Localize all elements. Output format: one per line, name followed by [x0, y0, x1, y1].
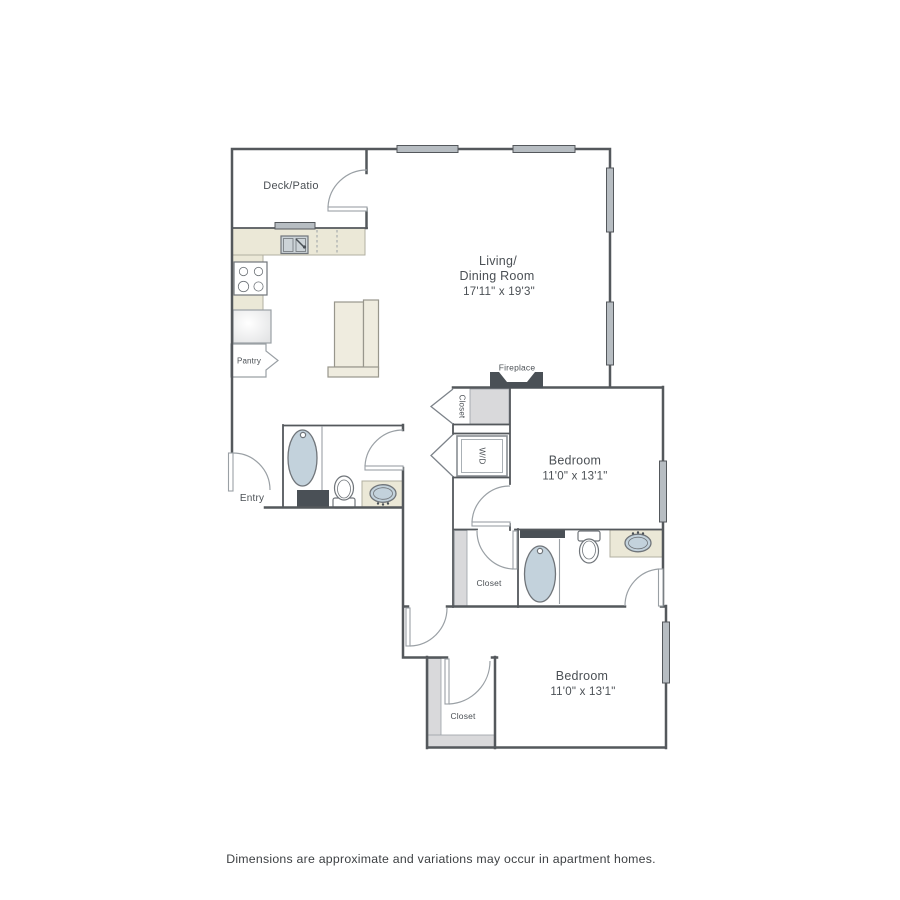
- entry-label: Entry: [240, 493, 264, 504]
- stove: [234, 262, 267, 295]
- window-living-right-1: [607, 168, 614, 232]
- bathroom-2: [520, 529, 663, 602]
- floor-plan-svg: Deck/Patio Living/ Dining Room 17'11" x …: [0, 0, 900, 900]
- bathroom-1-cabinet: [297, 490, 329, 508]
- bedroom1-label: Bedroom: [549, 454, 601, 468]
- fireplace-label: Fireplace: [499, 363, 536, 373]
- bathtub-1: [288, 430, 317, 486]
- deck-patio-label: Deck/Patio: [263, 180, 318, 192]
- toilet-2: [578, 531, 600, 563]
- disclaimer-text: Dimensions are approximate and variation…: [226, 852, 656, 866]
- living-room-label-line1: Living/: [479, 254, 517, 268]
- bedroom2-dimensions: 11'0" x 13'1": [550, 686, 615, 698]
- door-bedroom2-hall: [406, 608, 447, 646]
- door-bathroom2: [625, 569, 663, 606]
- sink-1: [362, 481, 403, 507]
- bedroom1-dimensions: 11'0" x 13'1": [542, 471, 607, 483]
- closet-hall-label: Closet: [458, 395, 467, 419]
- refrigerator: [233, 310, 271, 343]
- bedroom2-label: Bedroom: [556, 669, 608, 683]
- door-bedroom1: [472, 486, 510, 526]
- door-closet-middle: [477, 531, 517, 569]
- bathtub-2-faucet: [537, 548, 542, 553]
- window-living-right-2: [607, 302, 614, 365]
- window-top-2: [513, 146, 575, 153]
- door-entry: [229, 453, 271, 491]
- window-top-1: [397, 146, 458, 153]
- kitchen-sink: [281, 236, 308, 254]
- closet-hall-shelf: [470, 389, 509, 424]
- sink-2: [610, 530, 663, 557]
- toilet-1: [333, 476, 355, 508]
- bifold-washer-dryer: [431, 435, 453, 477]
- pantry-label: Pantry: [237, 357, 261, 366]
- living-room-label-line2: Dining Room: [459, 269, 534, 283]
- door-bathroom1: [365, 430, 403, 470]
- door-closet-bedroom2: [445, 659, 490, 704]
- door-deck: [328, 170, 367, 211]
- closet-middle-wall: [455, 531, 468, 607]
- bathtub-1-faucet: [300, 432, 305, 437]
- window-bedroom1: [660, 461, 667, 522]
- bathtub-2: [525, 546, 556, 602]
- window-bedroom2: [663, 622, 670, 683]
- living-room-dimensions: 17'11" x 19'3": [463, 286, 535, 298]
- floor-plan-page: Deck/Patio Living/ Dining Room 17'11" x …: [0, 0, 900, 900]
- closet-middle-label: Closet: [476, 578, 502, 588]
- closet-bedroom2-label: Closet: [450, 711, 476, 721]
- bifold-closet-hall: [431, 389, 453, 424]
- closet-bedroom2-shelf-bottom: [428, 735, 495, 747]
- closet-bedroom2-shelf-left: [428, 659, 441, 747]
- washer-dryer-label: W/D: [477, 447, 487, 464]
- window-kitchen: [275, 223, 315, 230]
- fireplace: [490, 372, 543, 389]
- sofa: [328, 300, 379, 377]
